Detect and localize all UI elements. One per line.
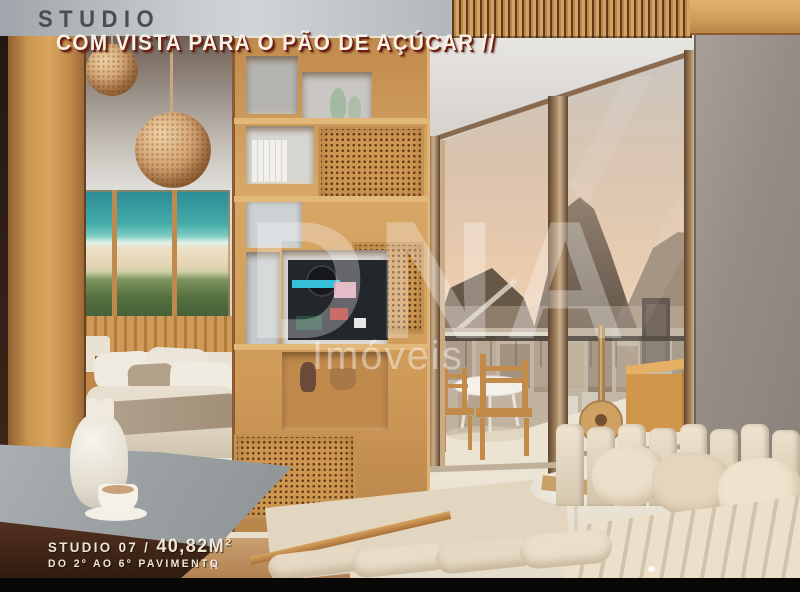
footer-floors: DO 2º AO 6º PAVIMENTO xyxy=(48,558,220,570)
footer-unit-area: STUDIO 07 / 40,82M² xyxy=(48,536,233,558)
jug-knob xyxy=(95,392,106,401)
unit-label: STUDIO 07 xyxy=(48,539,138,555)
highlight-dot xyxy=(648,566,655,572)
artwork-divider xyxy=(112,190,117,318)
pendant-lamp-rattan xyxy=(135,112,211,188)
beach-artwork-triptych xyxy=(82,190,230,318)
book-stack xyxy=(252,140,288,182)
area-value: 40,82M² xyxy=(156,536,232,557)
left-edge-shadow xyxy=(0,36,8,450)
bottom-black-bar xyxy=(0,578,800,592)
shelf-opening xyxy=(246,56,298,114)
separator: / xyxy=(138,539,156,555)
watermark-word: Imóveis xyxy=(312,334,464,379)
studio-render-scene: STUDIO COM VISTA PARA O PÃO DE AÇÚCAR //… xyxy=(0,0,800,592)
jug-neck xyxy=(86,398,114,418)
coffee-surface xyxy=(102,485,134,494)
artwork-divider xyxy=(172,190,177,318)
watermark-mini-mark: N xyxy=(210,560,218,572)
headline-view-title: COM VISTA PARA O PÃO DE AÇÚCAR // xyxy=(56,30,496,56)
glass-vase xyxy=(330,88,346,122)
wood-column xyxy=(6,36,84,448)
shelf-board xyxy=(234,118,428,124)
concrete-wall xyxy=(694,30,800,470)
wood-header xyxy=(690,0,800,35)
